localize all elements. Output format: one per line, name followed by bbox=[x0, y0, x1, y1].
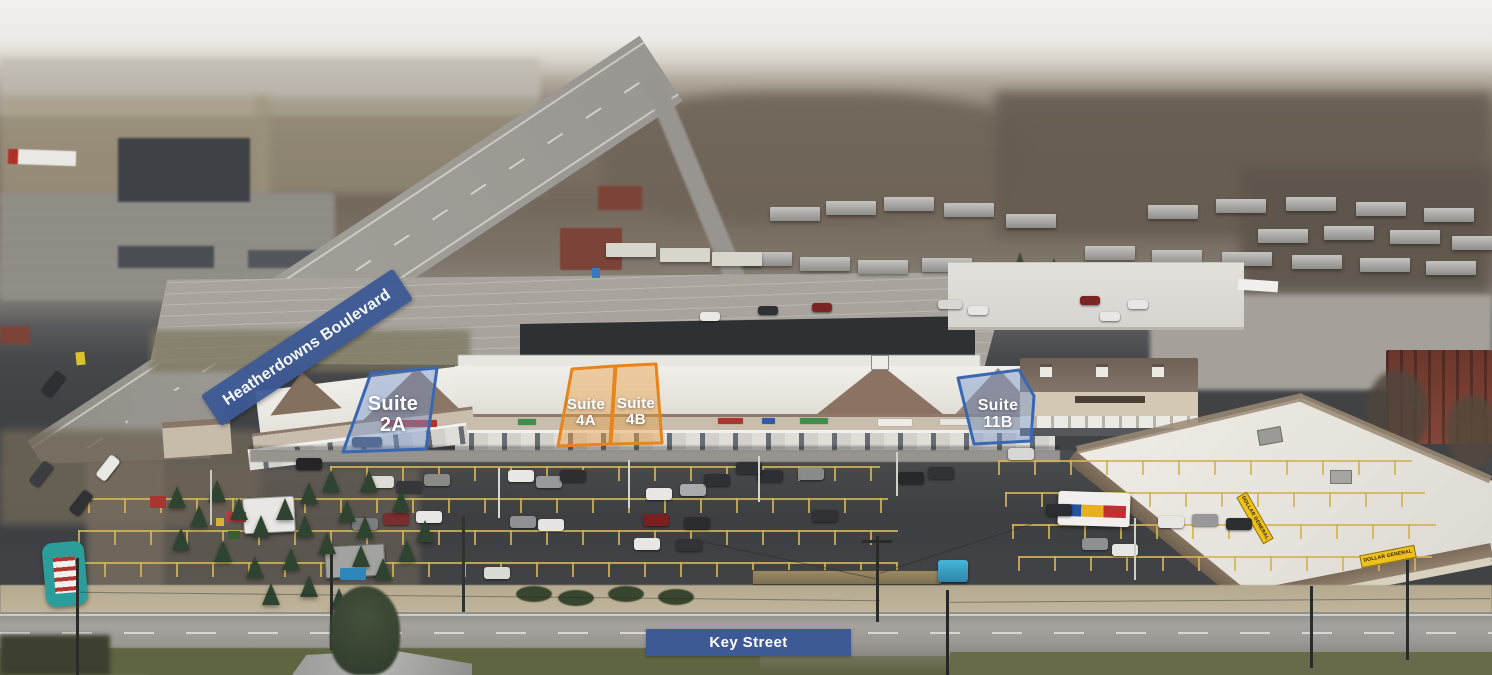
bush bbox=[608, 586, 644, 602]
house-roof bbox=[1216, 199, 1266, 213]
house-roof bbox=[858, 260, 908, 274]
utility-pole bbox=[758, 456, 760, 502]
house-roof bbox=[1292, 255, 1342, 269]
house-roof bbox=[1426, 261, 1476, 275]
house-roof bbox=[884, 197, 934, 211]
car bbox=[538, 519, 564, 531]
store-sign bbox=[718, 418, 743, 424]
christmas-tree bbox=[356, 516, 374, 538]
christmas-tree bbox=[374, 558, 392, 580]
christmas-tree bbox=[172, 528, 190, 550]
car bbox=[634, 538, 660, 550]
car bbox=[536, 476, 562, 488]
store-sign bbox=[518, 419, 536, 425]
warehouse bbox=[118, 246, 214, 268]
car bbox=[1192, 514, 1218, 526]
suite-11b-label: Suite 11B bbox=[960, 398, 1036, 432]
house-roof bbox=[712, 252, 762, 266]
aerial-photo: DOLLAR GENERAL DOLLAR GENERAL Suit bbox=[0, 0, 1492, 675]
house-roof bbox=[1452, 236, 1492, 250]
house-roof bbox=[1360, 258, 1410, 272]
green-bin bbox=[228, 531, 240, 539]
brick-building bbox=[598, 186, 642, 210]
bushes bbox=[0, 635, 110, 675]
car bbox=[704, 474, 730, 486]
car bbox=[643, 514, 669, 526]
yellow-sign bbox=[75, 352, 85, 366]
christmas-tree bbox=[318, 532, 336, 554]
house-roof bbox=[1286, 197, 1336, 211]
house-roof bbox=[800, 257, 850, 271]
christmas-tree bbox=[214, 540, 232, 562]
house-roof bbox=[944, 203, 994, 217]
semi-truck bbox=[8, 149, 76, 166]
christmas-tree bbox=[276, 498, 294, 520]
suite-2a-label: Suite 2A bbox=[352, 394, 434, 436]
car bbox=[1046, 504, 1072, 516]
car bbox=[968, 306, 988, 315]
portable-unit bbox=[592, 268, 600, 278]
blue-lift bbox=[340, 568, 366, 580]
house-roof bbox=[1356, 202, 1406, 216]
car bbox=[1082, 538, 1108, 550]
house-roof bbox=[660, 248, 710, 262]
car bbox=[1100, 312, 1120, 321]
suite-label-text: Suite bbox=[368, 393, 418, 415]
house-roof bbox=[1148, 205, 1198, 219]
suite-4b-label: Suite 4B bbox=[606, 396, 666, 428]
dormer bbox=[1096, 364, 1108, 377]
suite-label-unit: 2A bbox=[380, 414, 406, 436]
suite-label-text: Suite bbox=[567, 396, 605, 413]
rooftop-unit bbox=[1330, 470, 1352, 484]
house-roof bbox=[1390, 230, 1440, 244]
cupola bbox=[871, 355, 889, 370]
building-sign bbox=[1075, 396, 1145, 403]
car bbox=[352, 437, 382, 447]
car bbox=[1128, 300, 1148, 309]
christmas-tree bbox=[416, 520, 434, 542]
christmas-tree bbox=[352, 545, 370, 567]
christmas-tree bbox=[282, 548, 300, 570]
utility-pole bbox=[1134, 518, 1136, 580]
car bbox=[812, 510, 838, 522]
street-label-key-street: Key Street bbox=[646, 629, 851, 656]
car bbox=[758, 306, 778, 315]
car bbox=[646, 488, 672, 500]
suite-label-unit: 11B bbox=[983, 414, 1012, 431]
store-sign bbox=[878, 419, 912, 426]
utility-pole bbox=[76, 558, 79, 675]
car bbox=[928, 467, 954, 479]
utility-pole bbox=[1406, 560, 1409, 660]
christmas-tree bbox=[360, 470, 378, 492]
dark-building bbox=[118, 138, 250, 202]
sidewalk bbox=[250, 450, 1060, 462]
car bbox=[700, 312, 720, 321]
car bbox=[1158, 516, 1184, 528]
house-roof bbox=[1006, 214, 1056, 228]
evergreen-tree-large bbox=[330, 586, 400, 675]
christmas-tree bbox=[246, 556, 264, 578]
utility-pole bbox=[896, 452, 898, 496]
christmas-tree bbox=[398, 540, 416, 562]
truck-cab bbox=[938, 560, 968, 582]
car bbox=[938, 300, 962, 309]
yellow-bin bbox=[216, 518, 224, 526]
christmas-tree bbox=[190, 505, 208, 527]
house-roof bbox=[1324, 226, 1374, 240]
house-roof bbox=[1258, 229, 1308, 243]
suite-label-text: Suite bbox=[617, 395, 655, 412]
suite-label-unit: 4A bbox=[576, 412, 596, 429]
christmas-tree bbox=[300, 482, 318, 504]
christmas-tree bbox=[338, 500, 356, 522]
grass bbox=[950, 652, 1492, 675]
car bbox=[798, 468, 824, 480]
utility-pole bbox=[210, 470, 212, 525]
christmas-tree bbox=[252, 515, 270, 537]
suite-label-unit: 4B bbox=[626, 411, 646, 428]
car bbox=[684, 517, 710, 529]
house-roof bbox=[826, 201, 876, 215]
bush bbox=[516, 586, 552, 602]
pylon-sign bbox=[41, 540, 88, 607]
car bbox=[812, 303, 832, 312]
utility-pole bbox=[1310, 586, 1313, 668]
utility-pole bbox=[628, 460, 630, 508]
utility-pole bbox=[946, 590, 949, 675]
car bbox=[484, 567, 510, 579]
house-roof bbox=[1424, 208, 1474, 222]
house-roof bbox=[770, 207, 820, 221]
car bbox=[898, 472, 924, 484]
car bbox=[680, 484, 706, 496]
store-sign bbox=[762, 418, 775, 424]
car bbox=[560, 470, 586, 482]
christmas-tree bbox=[296, 515, 314, 537]
car bbox=[510, 516, 536, 528]
utility-pole bbox=[498, 468, 500, 518]
house-roof bbox=[1085, 246, 1135, 260]
red-building bbox=[0, 326, 30, 344]
christmas-tree bbox=[230, 498, 248, 520]
car bbox=[296, 458, 322, 470]
house-roof bbox=[606, 243, 656, 257]
car bbox=[1008, 448, 1034, 460]
christmas-tree bbox=[392, 490, 410, 512]
parking-stripes bbox=[1012, 524, 1436, 539]
christmas-tree bbox=[322, 470, 340, 492]
utility-pole bbox=[876, 536, 879, 622]
suite-label-text: Suite bbox=[978, 397, 1019, 414]
car bbox=[676, 539, 702, 551]
car bbox=[1080, 296, 1100, 305]
utility-pole bbox=[462, 516, 465, 612]
car bbox=[1226, 518, 1252, 530]
car bbox=[383, 513, 409, 525]
car bbox=[40, 370, 65, 398]
tree bbox=[1446, 395, 1492, 467]
red-kiosk bbox=[150, 496, 166, 508]
car bbox=[508, 470, 534, 482]
store-sign bbox=[800, 418, 828, 424]
dormer bbox=[1152, 364, 1164, 377]
car bbox=[424, 474, 450, 486]
parking-stripes bbox=[78, 530, 898, 545]
christmas-tree bbox=[168, 486, 186, 508]
dormer bbox=[1040, 364, 1052, 377]
